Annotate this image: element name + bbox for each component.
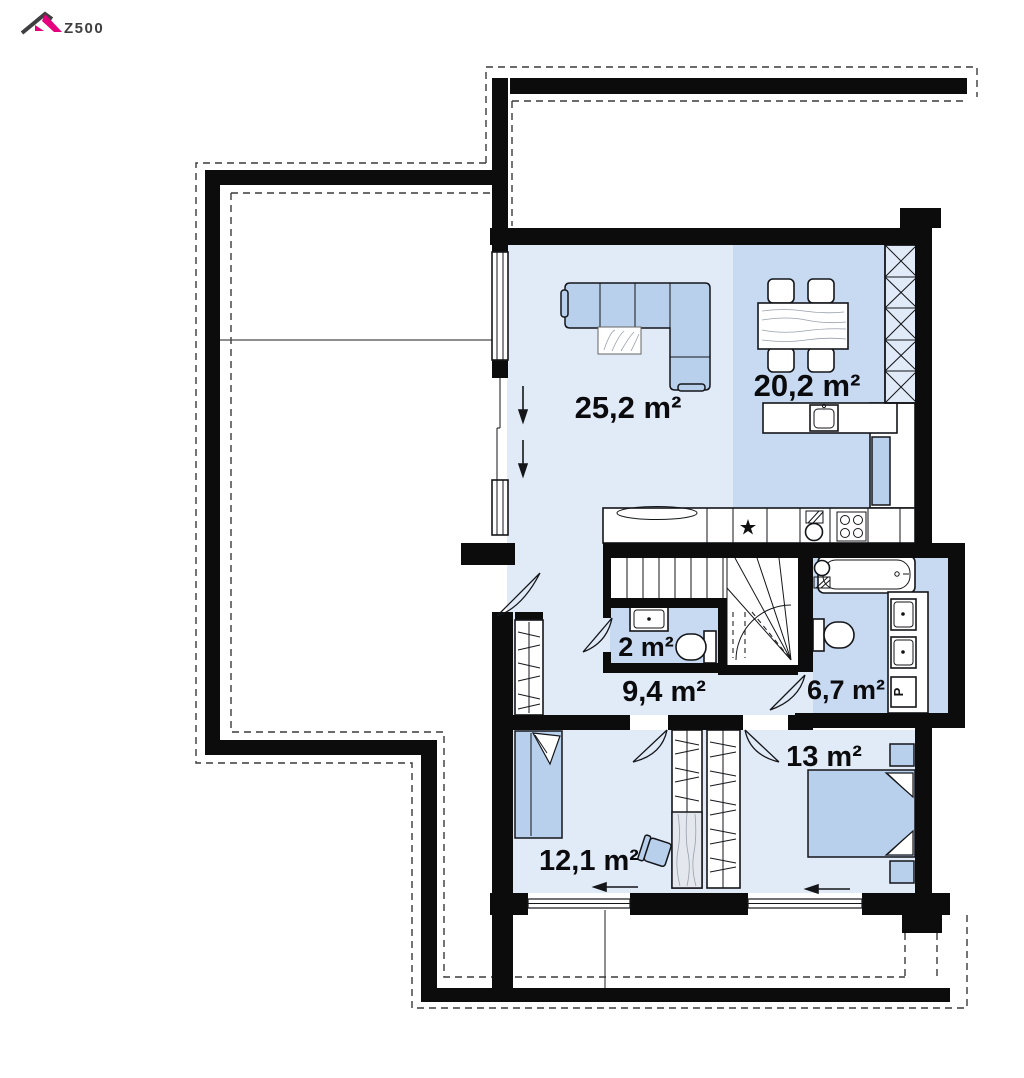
fridge <box>872 437 890 505</box>
floor-plan-svg: Z500 <box>0 0 1024 1078</box>
room-label-bathroom: 6,7 m² <box>807 675 885 705</box>
room-label-wc: 2 m² <box>618 632 674 662</box>
room-label-bedroom-left: 12,1 m² <box>539 845 639 877</box>
bathtub <box>818 556 915 593</box>
wardrobe-wood-panel <box>672 812 702 888</box>
bathroom-toilet-bowl <box>824 622 854 648</box>
bathroom-toilet-tank <box>813 619 824 651</box>
kitchen-sink-bowl <box>806 524 823 541</box>
room-label-living: 25,2 m² <box>575 390 682 425</box>
room-label-dining: 20,2 m² <box>754 368 861 403</box>
room-label-hall: 9,4 m² <box>622 676 706 708</box>
room-label-bedroom-right: 13 m² <box>786 741 862 773</box>
sofa-armrest-bottom <box>678 384 705 391</box>
window-living-2 <box>492 480 508 535</box>
bathroom-small-basin <box>815 561 830 576</box>
logo-brand-text: Z500 <box>64 20 104 37</box>
wc-toilet-bowl <box>676 634 706 660</box>
washing-machine-label: P <box>891 687 906 696</box>
logo-chevron-icon <box>35 25 44 31</box>
nightstand <box>890 744 914 766</box>
window-living-1 <box>492 252 508 360</box>
dining-chair <box>768 279 794 303</box>
floor-plan-page: Z500 <box>0 0 1024 1078</box>
dining-chair <box>808 279 834 303</box>
nightstand <box>890 861 914 883</box>
z500-logo: Z500 <box>22 14 104 37</box>
rug <box>598 327 641 354</box>
sofa-armrest-left <box>561 290 568 317</box>
hall-wardrobe <box>515 612 543 715</box>
